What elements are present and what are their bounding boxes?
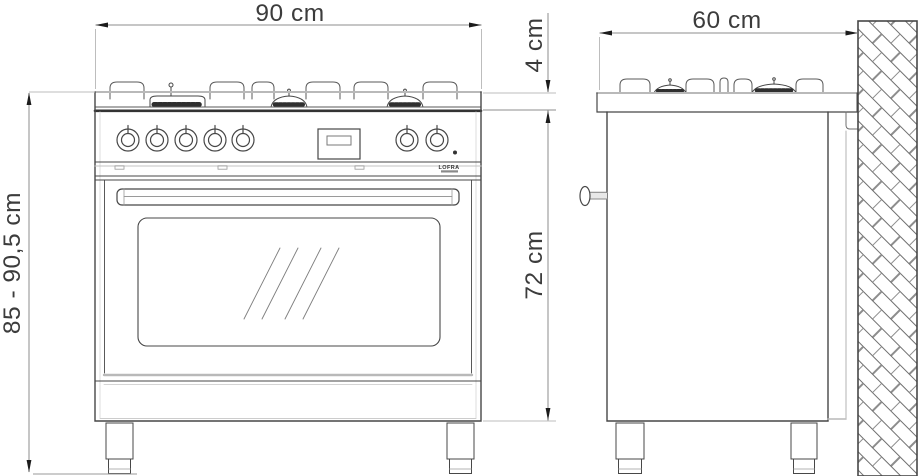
pan-support bbox=[252, 82, 274, 99]
pan-support bbox=[423, 82, 457, 99]
arrow-right bbox=[469, 23, 482, 28]
rear-bracket bbox=[846, 112, 858, 129]
pan-support bbox=[110, 82, 144, 99]
oven-programmer-display bbox=[318, 129, 360, 159]
brand-logo-text: LOFRA bbox=[439, 165, 460, 171]
arrow-up bbox=[27, 93, 32, 106]
oven-door-glass bbox=[138, 218, 440, 346]
pan-support bbox=[686, 79, 714, 93]
indicator-light bbox=[453, 151, 457, 155]
dim-label-depth: 60 cm bbox=[692, 7, 761, 34]
front-legs bbox=[106, 423, 474, 474]
wall bbox=[858, 21, 917, 476]
pan-support bbox=[796, 79, 823, 93]
dim-depth: 60 cm bbox=[600, 7, 859, 90]
pan-support bbox=[620, 79, 650, 93]
burner-knob bbox=[204, 126, 226, 152]
burner-knob bbox=[175, 126, 197, 152]
pan-support bbox=[720, 78, 728, 93]
diagram-canvas: LOFRA bbox=[0, 0, 923, 476]
dim-front-width: 90 cm bbox=[96, 0, 482, 89]
side-legs bbox=[616, 423, 817, 474]
dimensions: 90 cm 85 - 90,5 cm 4 cm 72 cm bbox=[0, 0, 858, 474]
front-view: LOFRA bbox=[95, 82, 481, 474]
arrow-down bbox=[546, 80, 551, 93]
pan-support bbox=[734, 79, 752, 93]
glass-reflections bbox=[244, 248, 339, 319]
oven-door-handle bbox=[117, 189, 459, 205]
oven-knob bbox=[426, 126, 448, 152]
front-oven-door bbox=[95, 180, 481, 381]
side-cooktop-burners bbox=[620, 78, 823, 93]
leg bbox=[106, 423, 133, 474]
wall-hatch bbox=[858, 21, 917, 476]
front-storage-drawer bbox=[100, 385, 476, 419]
oven-knob bbox=[396, 126, 418, 152]
arrow-left bbox=[96, 23, 109, 28]
side-view bbox=[580, 78, 858, 474]
arrow-right bbox=[846, 31, 859, 36]
front-body bbox=[95, 92, 481, 421]
arrow-down bbox=[546, 408, 551, 421]
dimension-drawing: LOFRA bbox=[0, 0, 923, 476]
arrow-left bbox=[600, 31, 613, 36]
burner-knob bbox=[232, 126, 254, 152]
front-control-panel bbox=[95, 126, 481, 163]
dim-label-overall-height: 85 - 90,5 cm bbox=[0, 192, 26, 334]
burner-dome bbox=[654, 79, 686, 93]
front-trim-strip: LOFRA bbox=[95, 165, 481, 176]
pan-support bbox=[354, 82, 388, 99]
side-door-handle bbox=[580, 187, 607, 206]
side-body bbox=[597, 93, 858, 421]
pan-support bbox=[306, 82, 340, 99]
dim-label-cooktop-edge: 4 cm bbox=[521, 17, 548, 72]
dim-label-front-width: 90 cm bbox=[255, 0, 324, 27]
leg bbox=[616, 423, 644, 474]
burner-dome bbox=[752, 78, 796, 93]
dim-cooktop-edge: 4 cm bbox=[483, 13, 556, 93]
pan-support bbox=[210, 82, 244, 99]
brand-logo-subline bbox=[441, 170, 458, 172]
front-cooktop-burners bbox=[110, 82, 457, 107]
leg bbox=[791, 423, 817, 474]
arrow-down bbox=[27, 460, 32, 473]
burner-knob bbox=[117, 126, 139, 152]
burner-wide bbox=[150, 83, 205, 107]
dim-overall-height: 85 - 90,5 cm bbox=[0, 92, 137, 474]
dim-label-oven-height: 72 cm bbox=[521, 230, 548, 299]
burner-knob bbox=[146, 126, 168, 152]
dim-oven-height: 72 cm bbox=[483, 110, 556, 421]
arrow-up bbox=[546, 111, 551, 124]
leg bbox=[447, 423, 474, 474]
